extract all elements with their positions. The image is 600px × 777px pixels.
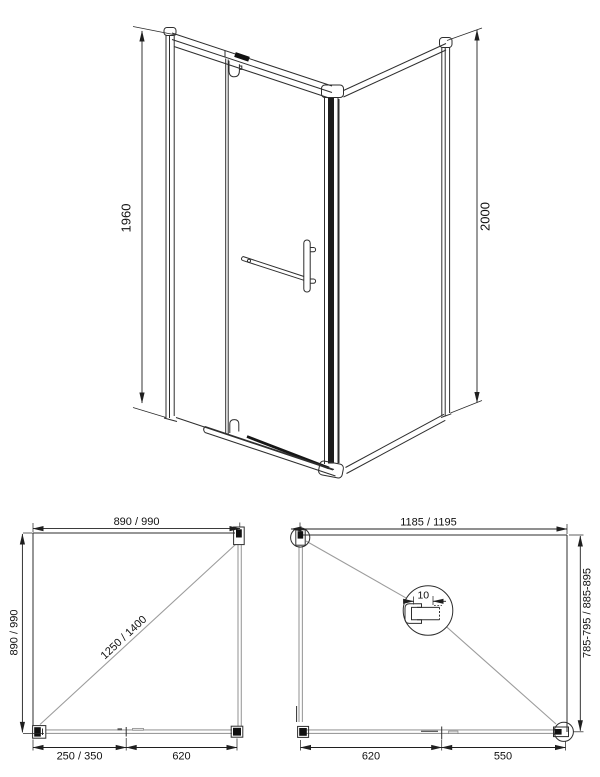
- dim-rect-width-label: 1185 / 1195: [400, 517, 456, 529]
- shower-enclosure-technical-drawing: 1960 2000: [0, 0, 600, 777]
- dim-square-door-label: 620: [172, 751, 190, 763]
- dim-rect-door-label: 620: [362, 751, 380, 763]
- canvas-background: [0, 0, 600, 777]
- dim-height-right-label: 2000: [478, 202, 493, 231]
- dim-square-width-label: 890 / 990: [114, 516, 160, 528]
- dim-square-depth-label: 890 / 990: [8, 610, 20, 656]
- dim-rect-depth-label: 785-795 / 885-895: [582, 568, 594, 658]
- dim-rect-fixed-panel-label: 550: [494, 751, 512, 763]
- dim-height-left-label: 1960: [119, 204, 134, 233]
- dim-square-fixed-panel-label: 250 / 350: [57, 751, 103, 763]
- dim-glass-thickness-label: 10: [417, 589, 429, 601]
